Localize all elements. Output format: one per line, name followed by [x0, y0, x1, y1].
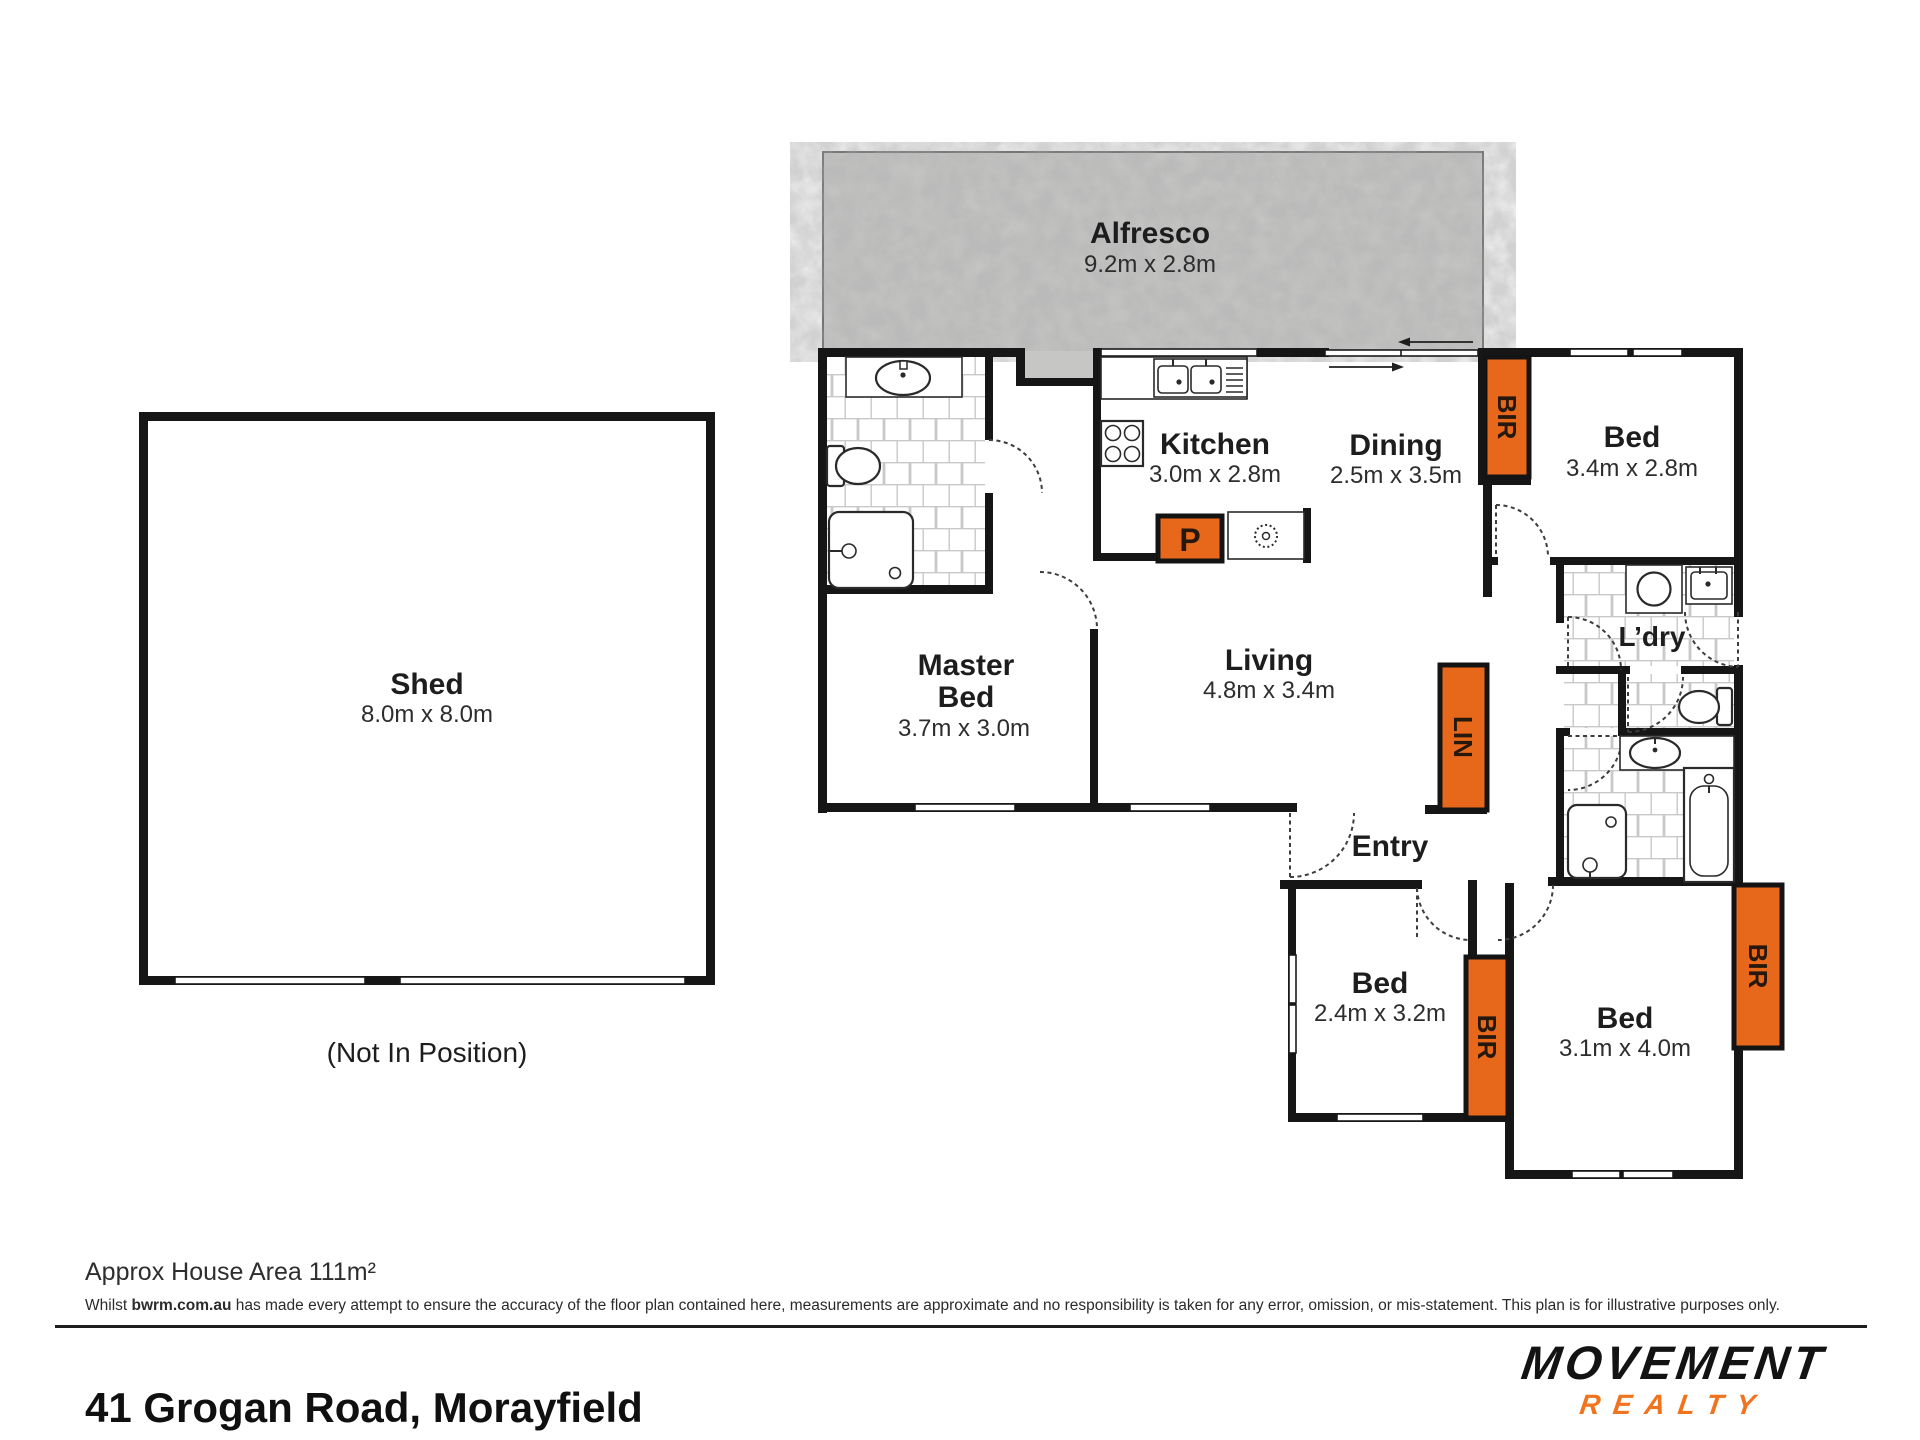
label-kitchen: Kitchen	[1160, 428, 1270, 461]
logo-realty-text: REALTY	[1486, 1389, 1862, 1421]
vanity-sink-2	[1620, 736, 1734, 770]
label-bed3: Bed	[1597, 1002, 1654, 1035]
label-bed2: Bed	[1352, 967, 1409, 1000]
kitchen-bench-sink	[1101, 357, 1247, 399]
dims-kitchen: 3.0m x 2.8m	[1149, 461, 1281, 488]
shed-note: (Not In Position)	[327, 1037, 528, 1068]
label-master-1: Master	[918, 649, 1015, 682]
cooktop	[1101, 421, 1143, 466]
dims-bed2: 2.4m x 3.2m	[1314, 1000, 1446, 1027]
disclaimer-rest: has made every attempt to ensure the acc…	[231, 1297, 1779, 1314]
bed1-door	[1496, 505, 1548, 557]
entry-door	[1290, 813, 1354, 877]
floorplan-page: BIR LIN P BIR BIR Alfresco 9.2m x 2.8m K…	[0, 0, 1920, 1440]
logo-movement-text: MOVEMENT	[1485, 1338, 1864, 1387]
floorplan-drawing: BIR LIN P BIR BIR Alfresco 9.2m x 2.8m K…	[0, 0, 1920, 1440]
agency-logo: MOVEMENT REALTY	[1488, 1338, 1860, 1421]
washing-machine	[1626, 565, 1682, 613]
approx-area-text: Approx House Area 111m²	[85, 1258, 376, 1287]
disclaimer-prefix: Whilst	[85, 1297, 132, 1314]
label-bed1: Bed	[1604, 421, 1661, 454]
label-entry: Entry	[1352, 830, 1429, 863]
bir-bed3-label: BIR	[1743, 944, 1773, 989]
footer-divider	[55, 1325, 1867, 1328]
dims-master: 3.7m x 3.0m	[898, 715, 1030, 742]
bir-bed2-label: BIR	[1472, 1015, 1502, 1060]
label-living: Living	[1225, 644, 1313, 677]
lin-label: LIN	[1448, 716, 1478, 758]
dims-shed: 8.0m x 8.0m	[361, 701, 493, 728]
label-shed: Shed	[390, 668, 463, 701]
toilet	[827, 446, 880, 486]
pantry-label: P	[1179, 522, 1200, 558]
label-laundry: L’dry	[1619, 621, 1686, 652]
dims-bed1: 3.4m x 2.8m	[1566, 455, 1698, 482]
dims-dining: 2.5m x 3.5m	[1330, 462, 1462, 489]
disclaimer-site: bwrm.com.au	[132, 1297, 232, 1314]
dims-alfresco: 9.2m x 2.8m	[1084, 251, 1216, 278]
property-address: 41 Grogan Road, Morayfield	[85, 1384, 643, 1432]
label-master-2: Bed	[938, 681, 995, 714]
label-alfresco: Alfresco	[1090, 217, 1210, 250]
tiled-floors	[827, 357, 1734, 877]
toilet-2	[1679, 688, 1732, 725]
laundry-tub	[1686, 567, 1732, 604]
label-dining: Dining	[1349, 429, 1442, 462]
shower	[829, 512, 913, 588]
dims-bed3: 3.1m x 4.0m	[1559, 1035, 1691, 1062]
bathtub	[1684, 768, 1734, 882]
master-bed-door	[1040, 572, 1097, 629]
shower-2	[1568, 805, 1626, 878]
vanity-sink	[846, 357, 962, 397]
bed2-door	[1417, 888, 1471, 940]
disclaimer-text: Whilst bwrm.com.au has made every attemp…	[85, 1297, 1780, 1315]
dims-living: 4.8m x 3.4m	[1203, 677, 1335, 704]
dishwasher	[1228, 512, 1304, 559]
bathroom-door	[989, 440, 1042, 493]
bir-bed1-label: BIR	[1492, 395, 1522, 440]
